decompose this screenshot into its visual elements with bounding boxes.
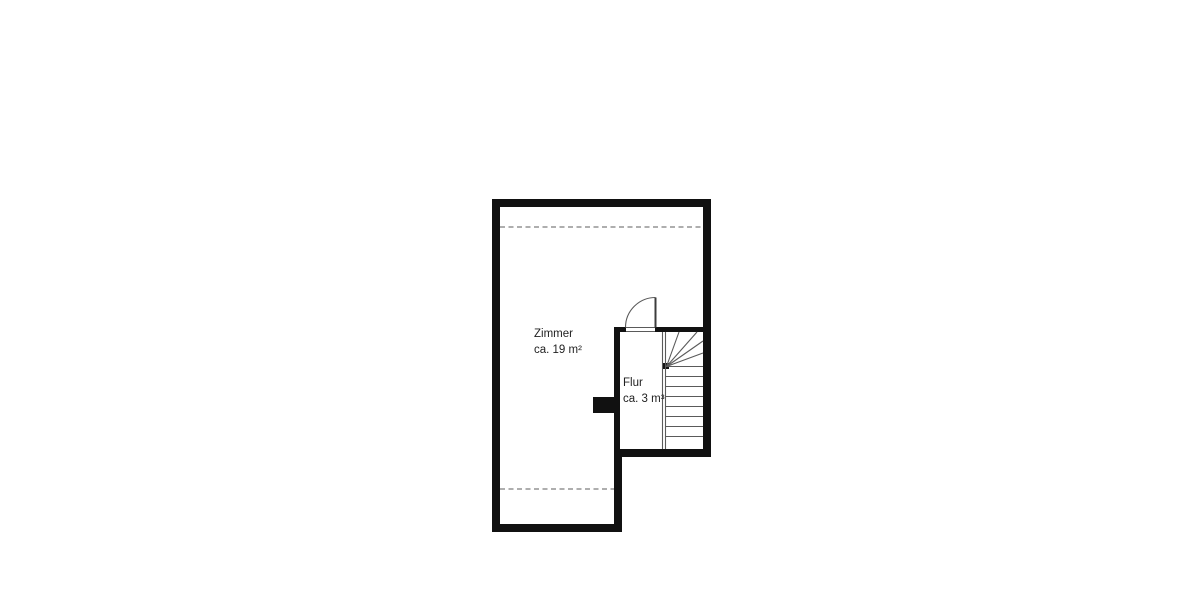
door-swing-arc — [626, 298, 656, 328]
winder-line — [667, 332, 680, 367]
room-label-flur-area: ca. 3 m³ — [623, 393, 665, 405]
wall-top — [492, 199, 711, 207]
wall-stair-bottom — [614, 449, 711, 457]
room-label-flur-name: Flur — [623, 377, 643, 389]
winder-line — [667, 341, 704, 367]
room-labels: Zimmer ca. 19 m² Flur ca. 3 m³ — [534, 328, 665, 405]
floor-plan-svg: Zimmer ca. 19 m² Flur ca. 3 m³ — [0, 0, 1200, 600]
chimney-stub — [593, 397, 614, 413]
wall-lower-right — [614, 449, 622, 532]
floor-plan-canvas: Zimmer ca. 19 m² Flur ca. 3 m³ — [0, 0, 1200, 600]
wall-bottom — [492, 524, 622, 532]
wall-interior-vertical — [614, 327, 620, 449]
wall-left — [492, 199, 500, 532]
wall-right — [703, 199, 711, 457]
thin-lines — [626, 298, 704, 450]
room-label-zimmer-area: ca. 19 m² — [534, 344, 582, 356]
wall-flur-top-left — [614, 327, 626, 332]
room-label-zimmer-name: Zimmer — [534, 328, 573, 340]
wall-flur-top-right — [655, 327, 703, 332]
walls — [492, 199, 711, 532]
